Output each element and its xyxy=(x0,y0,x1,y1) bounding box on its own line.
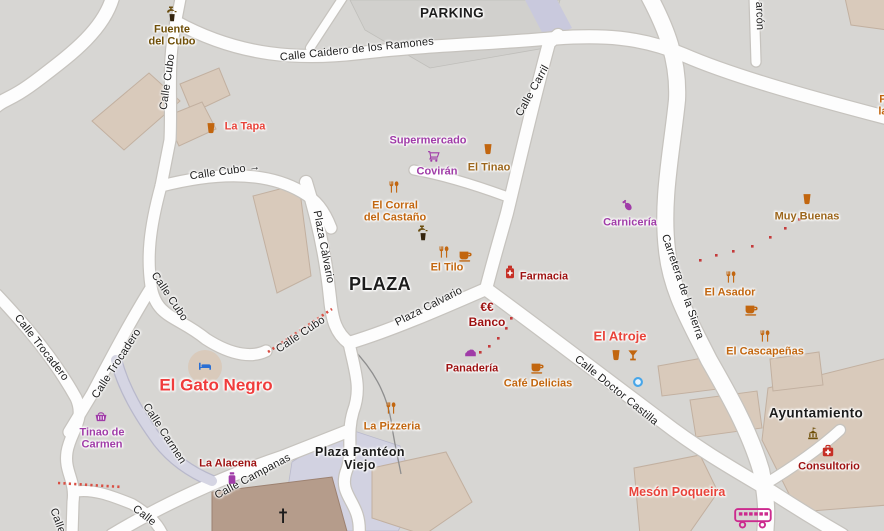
poi-label: del Castaño xyxy=(364,212,426,223)
poi-label: El Asador xyxy=(705,288,756,299)
restaurant-icon[interactable] xyxy=(725,270,738,284)
street-label: Calle Doctor Castilla xyxy=(572,354,660,428)
place-label: PARKING xyxy=(420,6,484,20)
restaurant-icon[interactable] xyxy=(759,329,772,343)
poi-label: El Tinao xyxy=(468,163,511,174)
cross-icon[interactable] xyxy=(277,509,289,524)
poi-label: El Tilo xyxy=(431,263,464,274)
poi-label: El Atroje xyxy=(594,330,647,343)
poi-label: El Cascapeñas xyxy=(726,347,804,358)
place-label: Viejo xyxy=(344,459,376,472)
poi-label: del Cubo xyxy=(148,36,195,47)
cart-icon[interactable] xyxy=(427,150,442,163)
map-viewport[interactable]: Calle Caidero de los RamonesCalle CuboCa… xyxy=(0,0,884,531)
street-label: Plaza Càlvario xyxy=(311,210,336,284)
poi-label: El Gato Negro xyxy=(159,377,272,394)
restaurant-icon[interactable] xyxy=(438,245,451,259)
poi-label: Mesón Poqueira xyxy=(629,486,726,499)
fountain-icon[interactable] xyxy=(165,5,179,22)
cup-icon[interactable] xyxy=(482,142,495,156)
poi-label: Farmacia xyxy=(520,272,568,283)
poi-label: Tinao de xyxy=(79,428,124,439)
street-label: Calle Cubo xyxy=(149,271,190,324)
poi-label: Banco xyxy=(469,316,506,328)
poi-label: €€ xyxy=(480,301,493,313)
meat-icon[interactable] xyxy=(621,198,635,212)
bed-icon[interactable] xyxy=(198,360,213,373)
poi-label: La Pizzeria xyxy=(364,422,421,433)
restaurant-icon[interactable] xyxy=(388,180,401,194)
pharmacy-icon[interactable] xyxy=(503,265,517,279)
street-label: Calle Carril xyxy=(514,63,551,118)
bus-icon[interactable] xyxy=(733,507,775,530)
restaurant-icon[interactable] xyxy=(385,401,398,415)
poi-label: Café Delicias xyxy=(504,379,572,390)
street-label: Calle Cubo xyxy=(275,315,328,356)
poi-label: Panadería xyxy=(446,364,499,375)
street-label: Calle Trocadero xyxy=(90,327,143,401)
street-label: Calle Trocadero xyxy=(12,313,70,383)
cup-icon[interactable] xyxy=(205,121,218,135)
poi-label: Consultorio xyxy=(798,462,860,473)
street-label: Calle Carmen xyxy=(140,402,187,466)
poi-label: Covirán xyxy=(417,167,458,178)
place-label: Plaza Pantéon xyxy=(315,446,405,459)
street-label: Calle Caidero de los Ramones xyxy=(279,36,434,63)
poi-label: las xyxy=(878,106,884,117)
cup-icon[interactable] xyxy=(610,348,623,362)
place-label: PLAZA xyxy=(349,275,411,293)
poi-label: Muy Buenas xyxy=(775,212,840,223)
basket-icon[interactable] xyxy=(94,410,108,423)
labels-layer: Calle Caidero de los RamonesCalle CuboCa… xyxy=(0,0,884,531)
coffee-icon[interactable] xyxy=(458,248,473,262)
street-label: Calle xyxy=(130,504,157,529)
coffee-icon[interactable] xyxy=(530,360,545,374)
poi-label: Carmen xyxy=(82,439,123,450)
poi-label: La Tapa xyxy=(225,122,266,133)
street-label: Calle xyxy=(47,507,66,531)
street-label: arcón xyxy=(753,2,765,31)
poi-label: Fuente xyxy=(154,25,190,36)
poi-label: El Corral xyxy=(372,201,418,212)
poi-label: Fu xyxy=(879,95,884,106)
street-label: Calle Cubo xyxy=(159,53,178,110)
waterdot-icon[interactable] xyxy=(632,376,644,388)
street-label: Calle Cubo → xyxy=(189,162,261,183)
townhall-icon[interactable] xyxy=(806,427,821,441)
poi-label: La Alacena xyxy=(199,459,257,470)
street-label: Carretera de la Sierra xyxy=(659,233,705,341)
firstaid-icon[interactable] xyxy=(821,444,835,458)
place-label: Ayuntamiento xyxy=(769,406,863,420)
cup-icon[interactable] xyxy=(801,192,814,206)
poi-label: Supermercado xyxy=(389,136,466,147)
jar-icon[interactable] xyxy=(226,471,239,485)
coffee-icon[interactable] xyxy=(744,302,759,316)
fountain-icon[interactable] xyxy=(416,224,430,241)
bread-icon[interactable] xyxy=(464,345,479,359)
poi-label: Carnicería xyxy=(603,218,657,229)
cocktail-icon[interactable] xyxy=(626,348,640,362)
